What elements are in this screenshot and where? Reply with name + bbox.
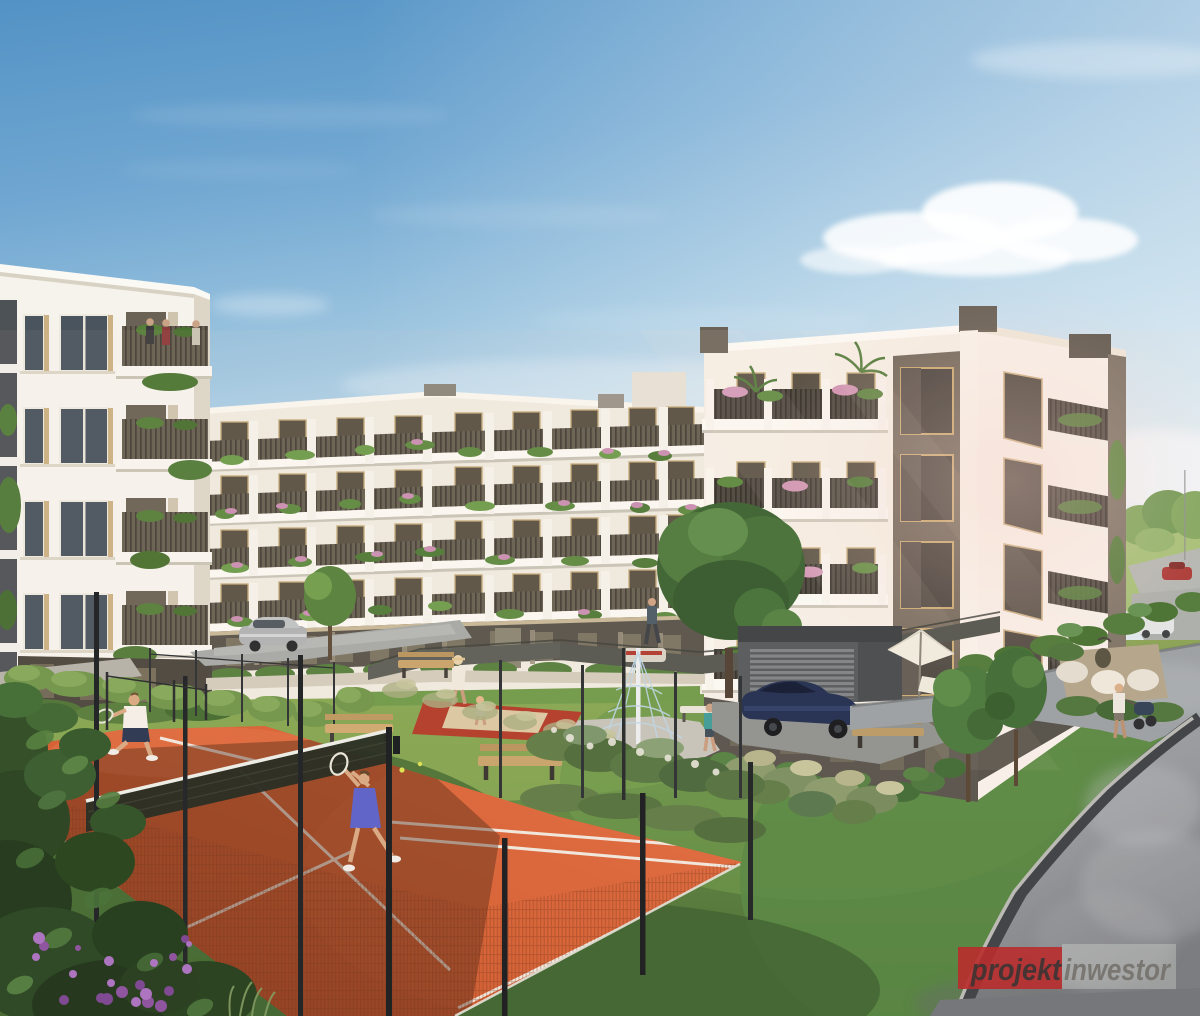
svg-text:inwestor: inwestor [1064, 952, 1172, 987]
svg-text:projekt: projekt [970, 952, 1062, 987]
